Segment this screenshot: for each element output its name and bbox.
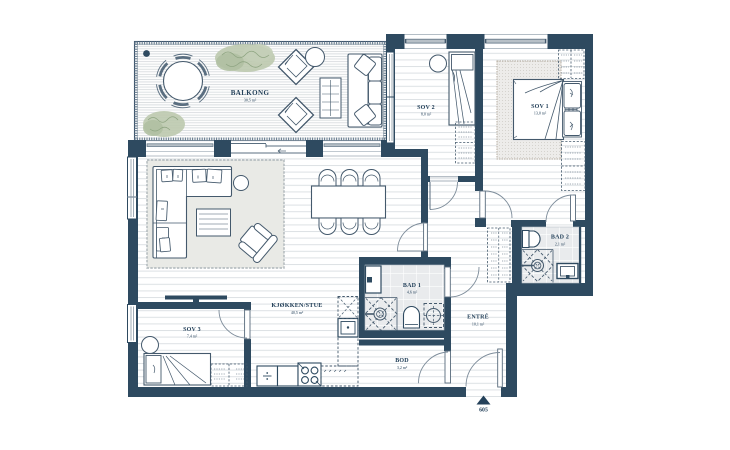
svg-text:ENTRÉ: ENTRÉ	[467, 313, 489, 321]
svg-text:SOV 2: SOV 2	[417, 105, 435, 111]
svg-text:BALKONG: BALKONG	[231, 89, 270, 97]
svg-text:BOD: BOD	[395, 358, 409, 364]
svg-text:605: 605	[479, 408, 488, 414]
svg-text:SOV 1: SOV 1	[531, 104, 549, 110]
svg-text:BAD 2: BAD 2	[551, 235, 569, 241]
svg-text:KJØKKEN/STUE: KJØKKEN/STUE	[271, 302, 322, 309]
svg-text:BAD 1: BAD 1	[403, 283, 421, 289]
svg-text:SOV 3: SOV 3	[183, 327, 201, 333]
